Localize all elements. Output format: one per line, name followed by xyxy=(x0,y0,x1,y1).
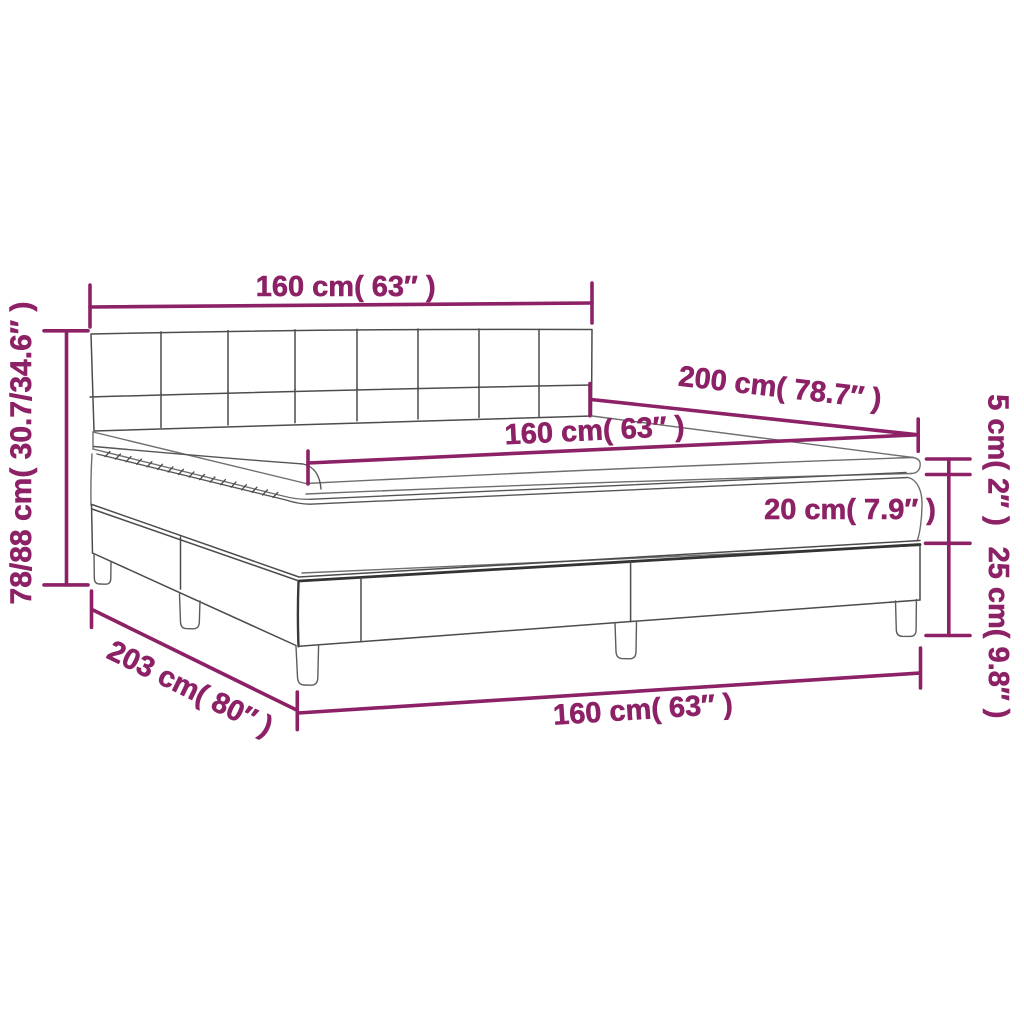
svg-text:5 cm( 2″ ): 5 cm( 2″ ) xyxy=(982,394,1014,526)
svg-text:20 cm( 7.9″ ): 20 cm( 7.9″ ) xyxy=(764,494,936,526)
svg-text:78/88 cm( 30.7/34.6″ ): 78/88 cm( 30.7/34.6″ ) xyxy=(5,302,38,605)
svg-text:25 cm( 9.8″ ): 25 cm( 9.8″ ) xyxy=(982,547,1014,719)
svg-text:200 cm( 78.7″ ): 200 cm( 78.7″ ) xyxy=(677,361,883,416)
svg-text:160 cm( 63″ ): 160 cm( 63″ ) xyxy=(256,271,436,303)
